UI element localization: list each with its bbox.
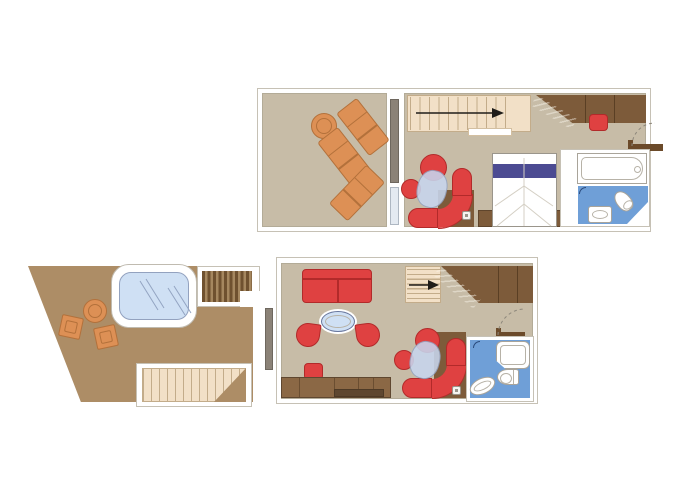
stair-landing-step bbox=[468, 128, 512, 136]
desk-recess bbox=[334, 389, 384, 397]
hot-tub-water bbox=[119, 272, 189, 320]
brand-marker-icon bbox=[452, 386, 461, 395]
terrace-round-table bbox=[83, 299, 107, 323]
wardrobe-seam bbox=[614, 95, 615, 123]
desk-seam bbox=[299, 378, 300, 397]
upper-red-ottoman bbox=[589, 114, 608, 131]
curved-sofa-end bbox=[402, 378, 432, 398]
shower-pan bbox=[496, 341, 530, 369]
terrace-deck-chair bbox=[93, 324, 119, 350]
detail-lines-overlay bbox=[0, 0, 680, 491]
balcony-door-glass-panel bbox=[390, 187, 399, 225]
toilet-tank-seam bbox=[513, 370, 514, 384]
basin-bowl bbox=[592, 210, 608, 219]
wardrobe-seam bbox=[585, 95, 586, 123]
balcony-sliding-door bbox=[390, 99, 399, 183]
shower-inner bbox=[500, 345, 526, 365]
chair-seat bbox=[99, 330, 113, 344]
double-bed bbox=[492, 153, 557, 227]
two-seat-sofa bbox=[302, 269, 372, 303]
table-ring bbox=[88, 304, 102, 318]
curved-sofa-end bbox=[446, 338, 466, 366]
bathtub-drain bbox=[634, 166, 641, 173]
whirlpool-hot-tub bbox=[111, 264, 197, 328]
chair-seat bbox=[64, 320, 78, 334]
lower-toilet bbox=[497, 369, 519, 385]
terrace-sliding-door bbox=[265, 308, 273, 370]
wardrobe-seam bbox=[498, 266, 499, 303]
curved-sofa-end bbox=[408, 208, 438, 228]
bathtub bbox=[577, 153, 647, 184]
upper-washbasin bbox=[588, 206, 612, 223]
brand-marker-icon bbox=[462, 211, 471, 220]
table-inner-ring bbox=[325, 315, 351, 328]
sofa-center-seam bbox=[337, 279, 339, 302]
stair-treads bbox=[410, 97, 509, 130]
toilet-bowl bbox=[500, 373, 512, 384]
bed-pillow-band bbox=[493, 164, 556, 178]
terrace-stairs-notch bbox=[240, 291, 260, 307]
oval-glass-table bbox=[321, 311, 355, 332]
wardrobe-seam bbox=[517, 266, 518, 303]
floor-plan-canvas bbox=[0, 0, 680, 491]
terrace-deck-chair bbox=[58, 314, 84, 340]
curved-sofa-end bbox=[452, 168, 472, 196]
upper-staircase bbox=[407, 95, 531, 132]
